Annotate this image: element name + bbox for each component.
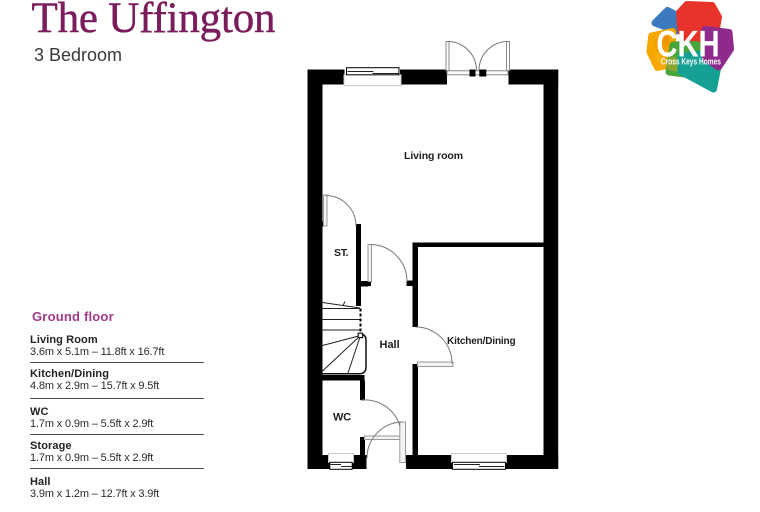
svg-text:ST.: ST. [334, 247, 349, 259]
svg-text:Living room: Living room [404, 150, 463, 162]
svg-text:Kitchen/Dining: Kitchen/Dining [447, 336, 515, 347]
svg-text:WC: WC [333, 412, 351, 424]
svg-text:Hall: Hall [380, 339, 400, 351]
